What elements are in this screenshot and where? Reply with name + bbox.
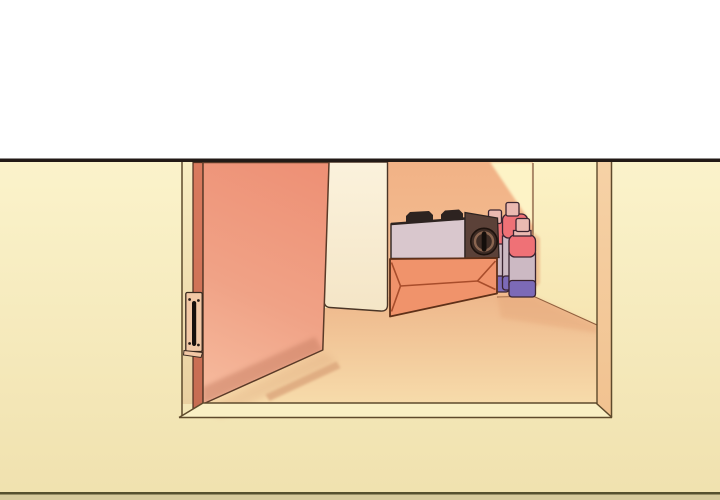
door-edge	[193, 163, 203, 413]
hinge-screw	[188, 298, 191, 301]
gas-stove	[391, 210, 499, 259]
stove-pan-support-left	[406, 211, 433, 223]
canister-right-cap	[516, 219, 530, 232]
comic-panel-art	[0, 0, 720, 500]
stove-pan-support-right	[441, 210, 463, 222]
door-hinge	[184, 293, 203, 358]
hinge-screw	[197, 344, 200, 347]
panel-bottom-border	[0, 492, 720, 495]
canister-middle-cap	[506, 203, 519, 217]
panel-top-border	[0, 159, 720, 163]
stove-knob-slot	[482, 232, 487, 252]
canister-right-label	[509, 235, 536, 257]
stove-body	[391, 219, 465, 259]
interior-panel	[324, 162, 388, 311]
sill-face	[179, 403, 612, 418]
panel-gutter	[0, 0, 720, 160]
butane-canister-right	[509, 219, 536, 298]
hinge-screw	[197, 299, 200, 302]
threshold-sill	[179, 403, 612, 418]
canister-right-base	[509, 281, 536, 298]
hinge-pin	[192, 301, 196, 346]
door-frame-inner-left	[182, 162, 193, 404]
door-frame-right-jamb	[597, 162, 612, 417]
hinge-screw	[188, 342, 191, 345]
panel-bottom-strip	[0, 495, 720, 500]
comic-panel-screenshot	[0, 0, 720, 500]
